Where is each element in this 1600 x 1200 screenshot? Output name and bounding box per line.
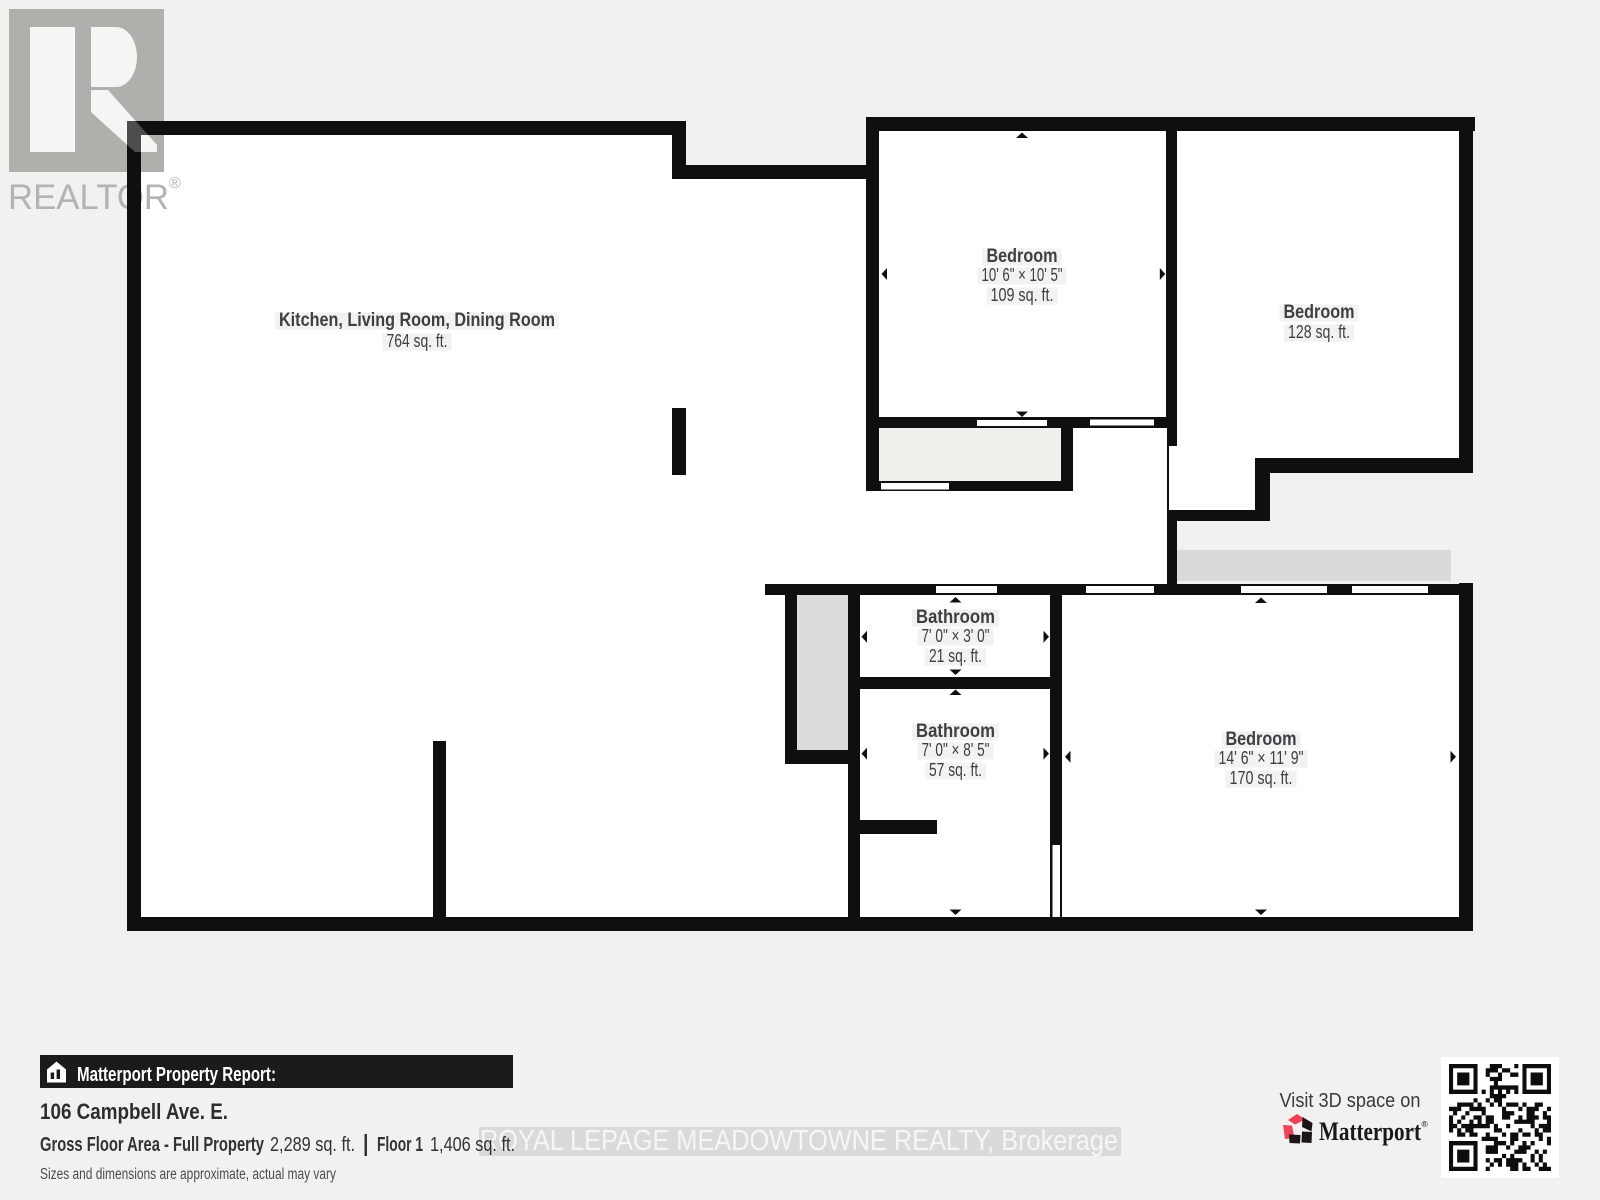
svg-text:764 sq. ft.: 764 sq. ft. bbox=[387, 331, 448, 351]
svg-text:Bedroom: Bedroom bbox=[987, 246, 1058, 267]
svg-text:ROYAL LEPAGE MEADOWTOWNE REALT: ROYAL LEPAGE MEADOWTOWNE REALTY, Brokera… bbox=[480, 1125, 1118, 1157]
svg-text:7' 0" × 8' 5": 7' 0" × 8' 5" bbox=[922, 740, 990, 760]
svg-text:57 sq. ft.: 57 sq. ft. bbox=[929, 760, 982, 780]
svg-text:Floor 1: Floor 1 bbox=[377, 1134, 423, 1156]
svg-text:Sizes and dimensions are appro: Sizes and dimensions are approximate, ac… bbox=[40, 1166, 336, 1183]
svg-text:®: ® bbox=[1422, 1119, 1429, 1129]
svg-text:Bedroom: Bedroom bbox=[1284, 302, 1355, 323]
svg-text:1,406 sq. ft.: 1,406 sq. ft. bbox=[430, 1134, 515, 1156]
svg-text:Matterport: Matterport bbox=[1319, 1117, 1421, 1146]
svg-text:21 sq. ft.: 21 sq. ft. bbox=[929, 646, 982, 666]
svg-text:106 Campbell Ave. E.: 106 Campbell Ave. E. bbox=[40, 1099, 228, 1124]
svg-text:Kitchen, Living Room, Dining R: Kitchen, Living Room, Dining Room bbox=[279, 310, 555, 331]
svg-text:109 sq. ft.: 109 sq. ft. bbox=[991, 285, 1054, 305]
svg-text:Bathroom: Bathroom bbox=[916, 721, 995, 742]
svg-text:128 sq. ft.: 128 sq. ft. bbox=[1288, 322, 1350, 342]
svg-text:7' 0" × 3' 0": 7' 0" × 3' 0" bbox=[922, 626, 990, 646]
svg-text:170 sq. ft.: 170 sq. ft. bbox=[1230, 768, 1293, 788]
svg-text:Bathroom: Bathroom bbox=[916, 607, 995, 628]
svg-text:Bedroom: Bedroom bbox=[1226, 729, 1297, 750]
svg-text:Visit 3D space on: Visit 3D space on bbox=[1280, 1090, 1421, 1112]
svg-text:Matterport Property Report:: Matterport Property Report: bbox=[77, 1064, 276, 1086]
svg-text:14' 6" × 11' 9": 14' 6" × 11' 9" bbox=[1219, 748, 1304, 768]
svg-text:®: ® bbox=[169, 175, 181, 192]
svg-text:Gross Floor Area - Full Proper: Gross Floor Area - Full Property bbox=[40, 1134, 265, 1156]
svg-text:2,289 sq. ft.: 2,289 sq. ft. bbox=[270, 1134, 355, 1156]
svg-text:REALTOR: REALTOR bbox=[8, 178, 169, 217]
svg-text:10' 6" × 10' 5": 10' 6" × 10' 5" bbox=[982, 265, 1063, 285]
